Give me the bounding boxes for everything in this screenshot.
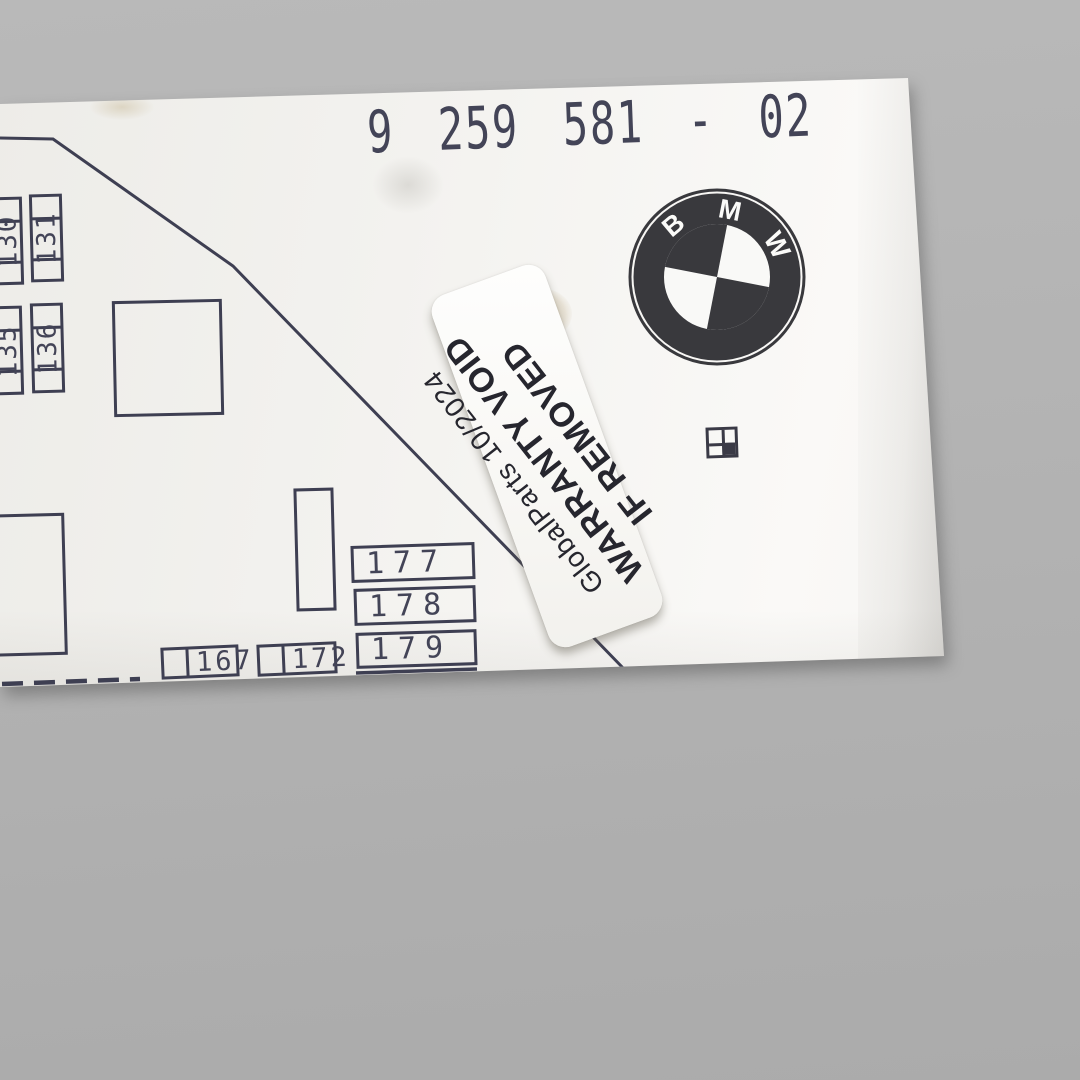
fuse-label: 135 <box>0 324 23 378</box>
fuse-label: 178 <box>369 589 451 622</box>
fuse-box-bottom: 167 <box>160 644 239 679</box>
fuse-label: 136 <box>32 321 63 375</box>
fuse-box-row: 177 <box>350 542 475 583</box>
photo-background: 9 259 581 - 02 130 131 135 136 <box>0 0 1080 1080</box>
fuse-box-row: 178 <box>353 585 476 626</box>
registration-checker-icon <box>705 426 738 458</box>
fuse-box-row: 179 <box>355 629 477 669</box>
module-panel-wrap: 9 259 581 - 02 130 131 135 136 <box>0 0 1080 1080</box>
fuse-label: 177 <box>366 546 448 579</box>
checker-filled-cell <box>722 442 735 455</box>
fuse-label: 131 <box>31 211 62 265</box>
relay-outline-rect <box>0 513 68 658</box>
bmw-logo-icon: B M W <box>627 187 807 367</box>
fuse-box-vertical: 131 <box>29 194 64 283</box>
relay-outline-square <box>112 299 224 417</box>
fuse-label: 172 <box>291 643 350 672</box>
fuse-box-vertical: 130 <box>0 197 24 286</box>
part-number: 9 259 581 - 02 <box>366 87 813 162</box>
module-cover-panel: 9 259 581 - 02 130 131 135 136 <box>0 0 1080 1080</box>
fuse-label: 130 <box>0 214 23 268</box>
fuse-box-vertical: 135 <box>0 306 24 396</box>
fuse-box-bottom: 172 <box>256 641 337 676</box>
fuse-label: 179 <box>371 633 453 666</box>
fuse-box-vertical: 136 <box>30 303 65 394</box>
connector-outline-rect <box>293 487 336 611</box>
fuse-label: 167 <box>195 646 254 675</box>
